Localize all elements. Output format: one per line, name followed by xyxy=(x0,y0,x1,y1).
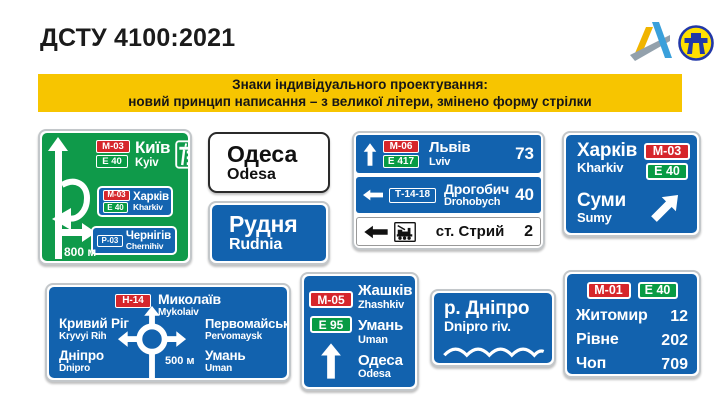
distance-km: 73 xyxy=(515,144,534,164)
route-badge: М-06 xyxy=(383,140,419,153)
sign-roundabout: Н-14 Миколаїв Mykolaiv Кривий Ріг Kryvyi… xyxy=(45,283,291,382)
sign-green-advance: М-03 E 40 Київ Kyiv М-03 E xyxy=(38,129,192,265)
destination-name: Чоп xyxy=(576,356,606,374)
destination-name: Одеса xyxy=(358,353,412,369)
river-name: р. Дніпро xyxy=(444,299,552,319)
sign-dnipro-river: р. Дніпро Dnipro riv. xyxy=(430,289,556,367)
distance-km: 12 xyxy=(670,308,688,326)
route-badge: Т-14-18 xyxy=(389,188,436,203)
destination-latin: Pervomaysk xyxy=(205,331,287,342)
eroad-badge: E 40 xyxy=(638,282,678,299)
eroad-badge: E 40 xyxy=(103,202,128,213)
route-badge: М-03 xyxy=(96,140,130,153)
destination-name: Дрогобич xyxy=(444,182,509,197)
panel-row-stryi: ст. Стрий 2 xyxy=(356,217,541,246)
left-arrow-icon xyxy=(363,188,383,202)
route-badge: М-03 xyxy=(644,143,690,160)
river-latin: Dnipro riv. xyxy=(444,319,552,334)
roundabout-symbol-icon xyxy=(117,306,187,378)
distance-label: 800 м xyxy=(64,245,96,259)
inset-sign-chernihiv: Р-03 Чернігів Chernihiv xyxy=(91,226,177,255)
banner-line1: Знаки індивідуального проектування: xyxy=(38,76,682,93)
route-badge: М-05 xyxy=(309,291,353,308)
route-badge: Р-03 xyxy=(97,235,123,247)
banner: Знаки індивідуального проектування: нови… xyxy=(38,74,682,112)
page-title: ДСТУ 4100:2021 xyxy=(40,24,235,53)
up-right-arrow-icon xyxy=(648,189,684,225)
destination-latin: Kharkiv xyxy=(577,161,637,175)
eroad-badge: E 95 xyxy=(310,316,352,333)
route-badge: М-03 xyxy=(103,190,130,201)
locality-latin: Rudnia xyxy=(229,236,326,254)
water-wave-icon xyxy=(442,343,546,358)
destination-latin: Chernihiv xyxy=(126,242,171,251)
destination-name: Миколаїв xyxy=(158,292,221,307)
table-row: Рівне 202 xyxy=(576,332,688,350)
sign-rudnia: Рудня Rudnia xyxy=(208,201,330,265)
destination-name: Жашків xyxy=(358,283,412,299)
destination-latin: Kyiv xyxy=(135,157,170,170)
locality-latin: Odesa xyxy=(227,166,326,184)
sign-zhashkiv: М-05 E 95 Жашків Zhashkiv Умань Uman Оде… xyxy=(300,272,419,391)
up-arrow-icon xyxy=(320,341,342,381)
destination-latin: Uman xyxy=(205,363,287,374)
destination-name: ст. Стрий xyxy=(422,223,518,240)
distance-km: 40 xyxy=(515,185,534,205)
route-badge: М-01 xyxy=(587,282,631,299)
locality-name: Одеса xyxy=(227,142,326,166)
eroad-badge: E 417 xyxy=(383,155,419,168)
eroad-badge: E 40 xyxy=(646,163,688,180)
destination-name: Первомайськ xyxy=(205,317,287,331)
sign-distance-table: М-01 E 40 Житомир 12 Рівне 202 Чоп 709 xyxy=(563,270,701,378)
destination-latin: Odesa xyxy=(358,368,412,380)
left-arrow-icon xyxy=(364,225,388,239)
ukravtodor-logo-icon xyxy=(630,22,672,62)
destination-name: Умань xyxy=(205,349,287,363)
green-main-row: М-03 E 40 Київ Kyiv xyxy=(96,139,188,169)
destination-latin: Sumy xyxy=(577,211,626,225)
inset-sign-kharkiv: М-03 E 40 Харків Kharkiv xyxy=(97,186,173,217)
destination-name: Рівне xyxy=(576,332,619,350)
u-turn-branch-arrow-icon xyxy=(44,137,98,259)
destination-name: Умань xyxy=(358,318,412,334)
distance-label: 500 м xyxy=(165,355,195,367)
road-agency-emblem-icon xyxy=(678,25,714,61)
destination-name: Харків xyxy=(577,141,637,161)
motorway-icon xyxy=(175,140,188,169)
distance-km: 2 xyxy=(524,223,533,241)
panel-row-drohobych: Т-14-18 Дрогобич Drohobych 40 xyxy=(356,177,541,213)
destination-latin: Zhashkiv xyxy=(358,299,412,311)
destination-latin: Uman xyxy=(358,334,412,346)
destination-name: Київ xyxy=(135,139,170,157)
sign-odesa: Одеса Odesa xyxy=(208,132,330,193)
up-arrow-icon xyxy=(363,142,377,167)
destination-name: Львів xyxy=(429,140,509,156)
route-badges-row: М-01 E 40 xyxy=(576,282,688,299)
eroad-badge: E 40 xyxy=(96,155,128,168)
slide: ДСТУ 4100:2021 Знаки індивідуального про… xyxy=(0,0,720,405)
banner-line2: новий принцип написання – з великої літе… xyxy=(38,93,682,110)
distance-km: 709 xyxy=(661,356,688,374)
sign-kharkiv-sumy: Харків Kharkiv М-03 E 40 Суми Sumy xyxy=(562,131,701,237)
destination-latin: Drohobych xyxy=(444,196,509,208)
railway-station-icon xyxy=(394,222,416,242)
distance-km: 202 xyxy=(661,332,688,350)
destination-name: Житомир xyxy=(576,308,648,326)
destination-latin: Kharkiv xyxy=(133,203,169,212)
locality-name: Рудня xyxy=(229,212,326,236)
destination-latin: Lviv xyxy=(429,156,509,168)
panel-row-lviv: М-06 E 417 Львів Lviv 73 xyxy=(356,135,541,173)
sign-lviv-panel: М-06 E 417 Львів Lviv 73 Т-14-18 Дрогоби… xyxy=(352,131,545,250)
table-row: Чоп 709 xyxy=(576,356,688,374)
destination-name: Суми xyxy=(577,191,626,211)
table-row: Житомир 12 xyxy=(576,308,688,326)
